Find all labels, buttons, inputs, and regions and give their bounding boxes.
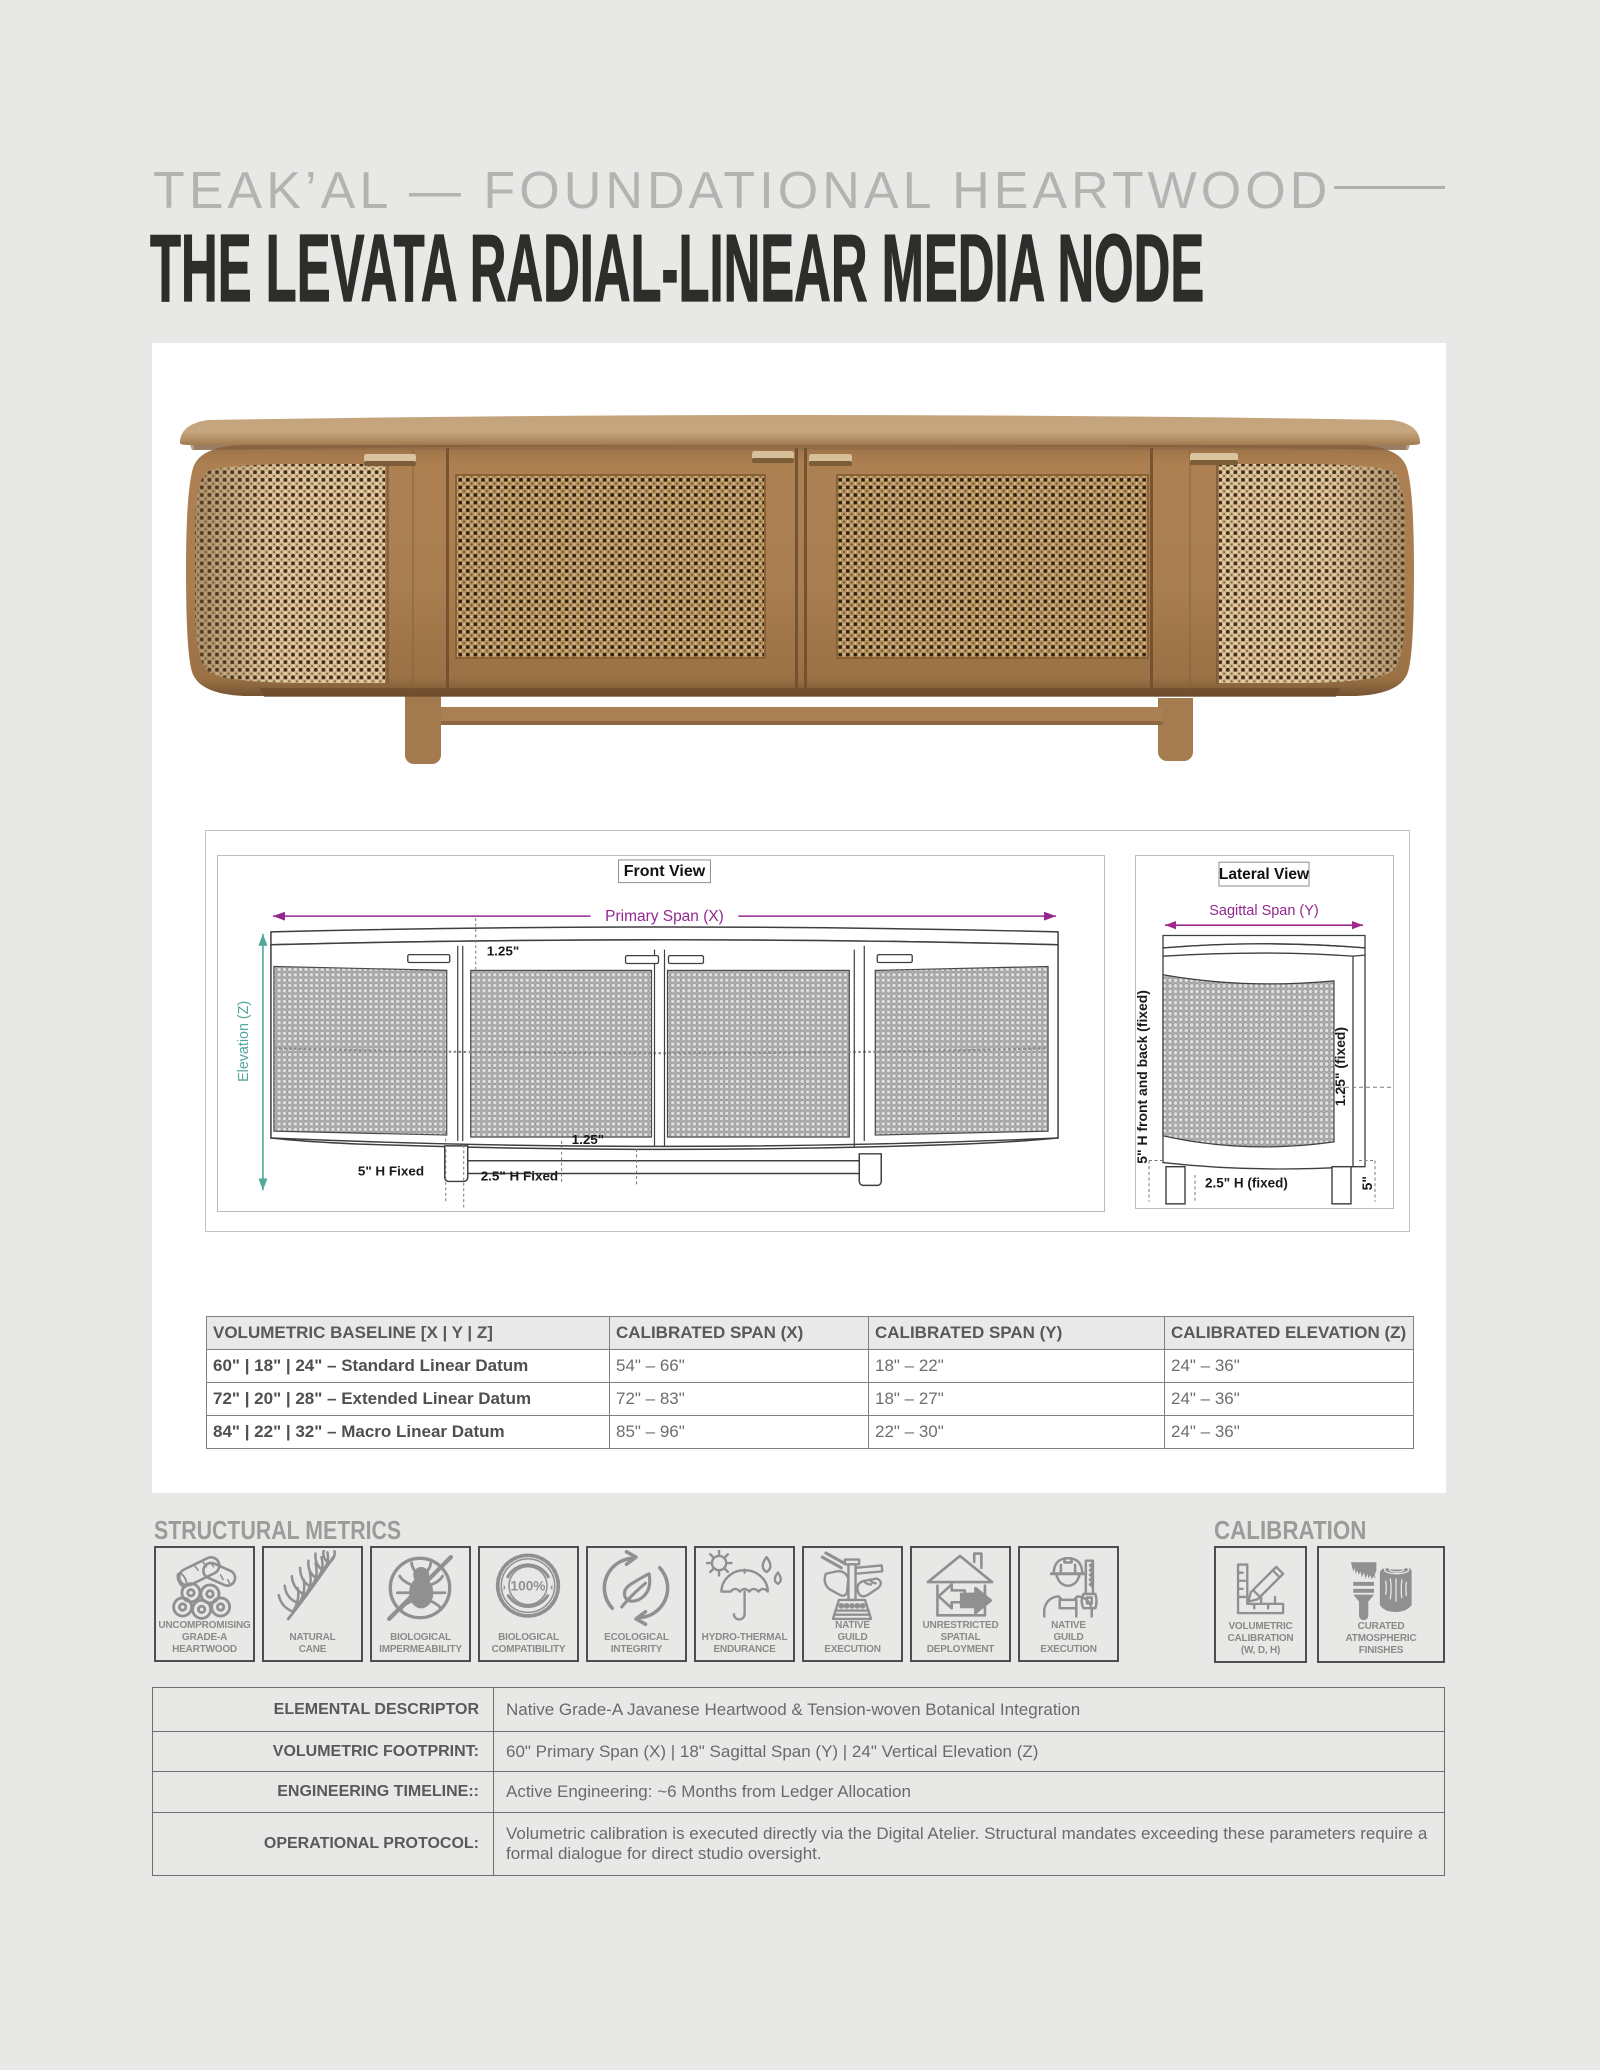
- svg-text:5" H Fixed: 5" H Fixed: [358, 1164, 424, 1179]
- svg-text:2.5" H Fixed: 2.5" H Fixed: [481, 1169, 558, 1184]
- svg-text:Elevation (Z): Elevation (Z): [236, 1001, 252, 1082]
- svg-text:5" H front and back (fixed): 5" H front and back (fixed): [1135, 990, 1150, 1164]
- svg-text:Front View: Front View: [624, 863, 706, 880]
- svg-text:Primary Span (X): Primary Span (X): [605, 908, 724, 925]
- svg-text:100%: 100%: [511, 1578, 546, 1593]
- svg-text:Sagittal Span (Y): Sagittal Span (Y): [1209, 903, 1319, 919]
- svg-text:1.25": 1.25": [487, 944, 520, 959]
- svg-text:1.25": 1.25": [572, 1132, 605, 1147]
- svg-text:2.5" H (fixed): 2.5" H (fixed): [1205, 1175, 1288, 1190]
- svg-text:Lateral View: Lateral View: [1219, 866, 1310, 883]
- svg-text:1.25" (fixed): 1.25" (fixed): [1333, 1027, 1348, 1106]
- svg-text:5": 5": [1360, 1176, 1375, 1190]
